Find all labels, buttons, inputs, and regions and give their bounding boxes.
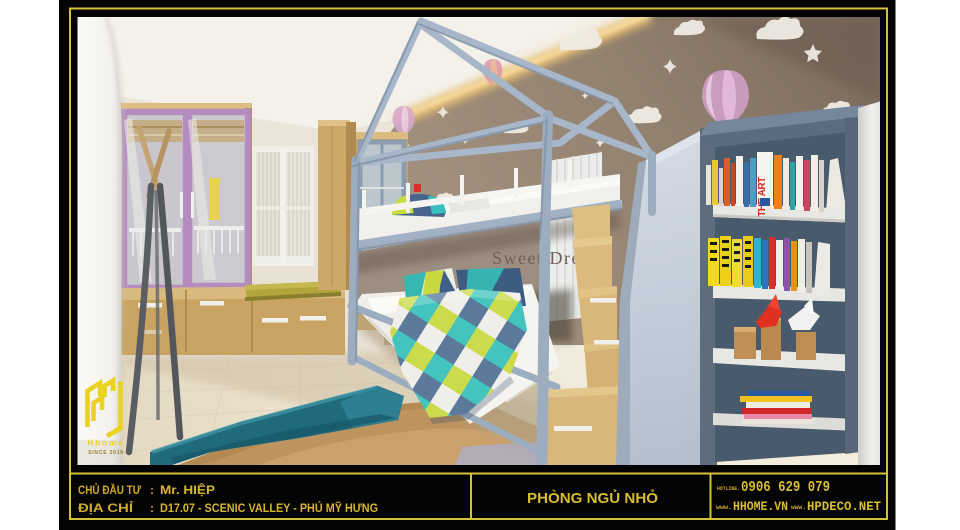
svg-text:www.: www. — [716, 504, 732, 511]
svg-text:SINCE 2018: SINCE 2018 — [88, 450, 124, 456]
svg-text:HHOME.VN: HHOME.VN — [733, 499, 788, 514]
svg-text:THE ART: THE ART — [757, 177, 768, 217]
svg-text:CHỦ ĐẦU TƯ: CHỦ ĐẦU TƯ — [78, 482, 141, 497]
svg-text::: : — [150, 483, 154, 497]
svg-text:D17.07 - SCENIC VALLEY - P: D17.07 - SCENIC VALLEY - PHÚ MỸ HƯNG — [160, 500, 378, 515]
svg-text:HPDECO.NET: HPDECO.NET — [807, 499, 881, 514]
svg-text:HOTLINE.: HOTLINE. — [717, 486, 740, 492]
svg-text:0906 629 079: 0906 629 079 — [741, 480, 830, 496]
svg-text::: : — [150, 501, 154, 515]
svg-text:Mr. HIỆP: Mr. HIỆP — [160, 482, 215, 497]
svg-text:PHÒNG NGỦ NHỎ: PHÒNG NGỦ NHỎ — [527, 489, 658, 507]
svg-text:Hhome: Hhome — [87, 439, 124, 448]
svg-text:www.: www. — [791, 504, 806, 511]
svg-text:ĐỊA CHỈ: ĐỊA CHỈ — [78, 500, 134, 515]
